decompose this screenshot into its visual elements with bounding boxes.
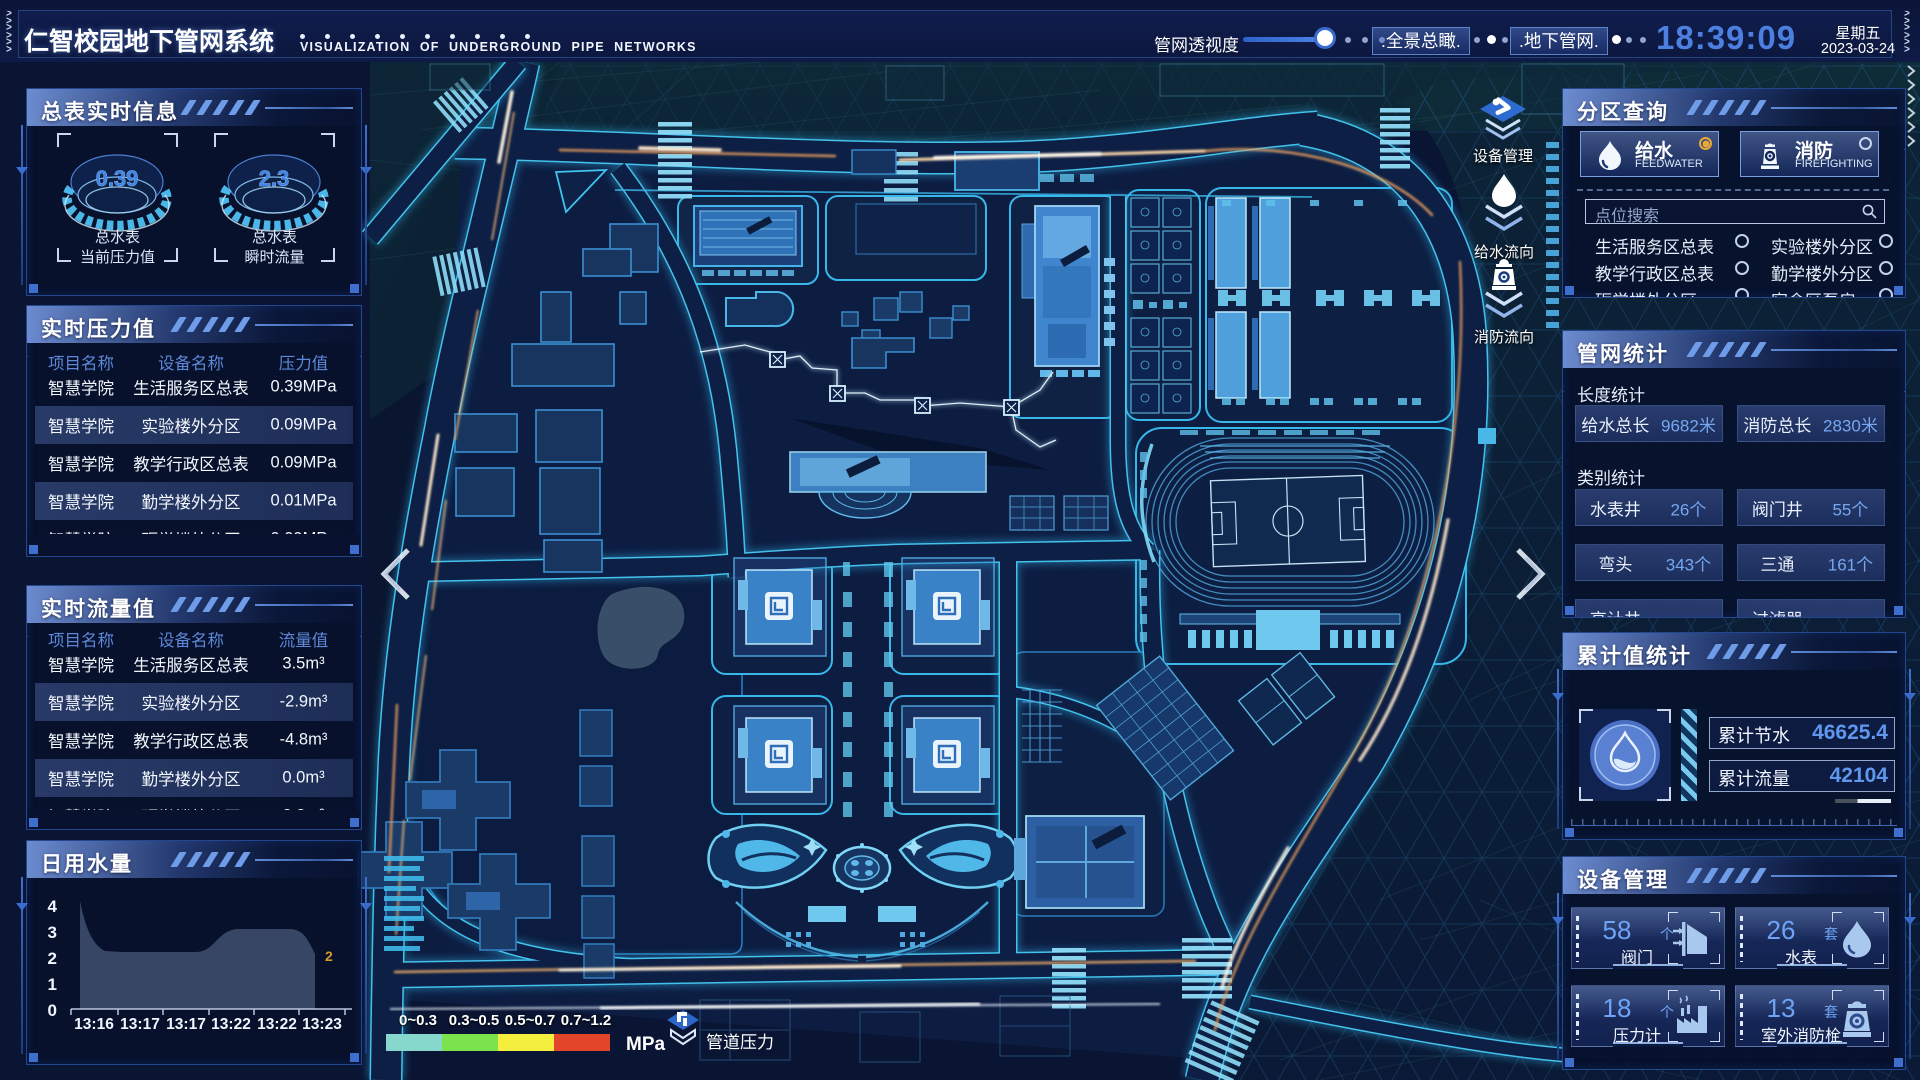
svg-text:13:17: 13:17: [120, 1016, 160, 1033]
svg-text:13:22: 13:22: [211, 1016, 251, 1033]
svg-text:13:23: 13:23: [302, 1016, 342, 1033]
svg-text:2: 2: [48, 949, 57, 968]
svg-text:13:17: 13:17: [166, 1016, 206, 1033]
svg-text:13:22: 13:22: [257, 1016, 297, 1033]
svg-text:4: 4: [48, 897, 58, 916]
svg-text:1: 1: [48, 975, 57, 994]
svg-text:0: 0: [48, 1001, 57, 1020]
svg-text:0.39: 0.39: [96, 166, 139, 191]
svg-text:2.3: 2.3: [259, 166, 290, 191]
svg-text:2: 2: [325, 948, 333, 964]
svg-text:3: 3: [48, 923, 57, 942]
svg-text:13:16: 13:16: [74, 1016, 114, 1033]
